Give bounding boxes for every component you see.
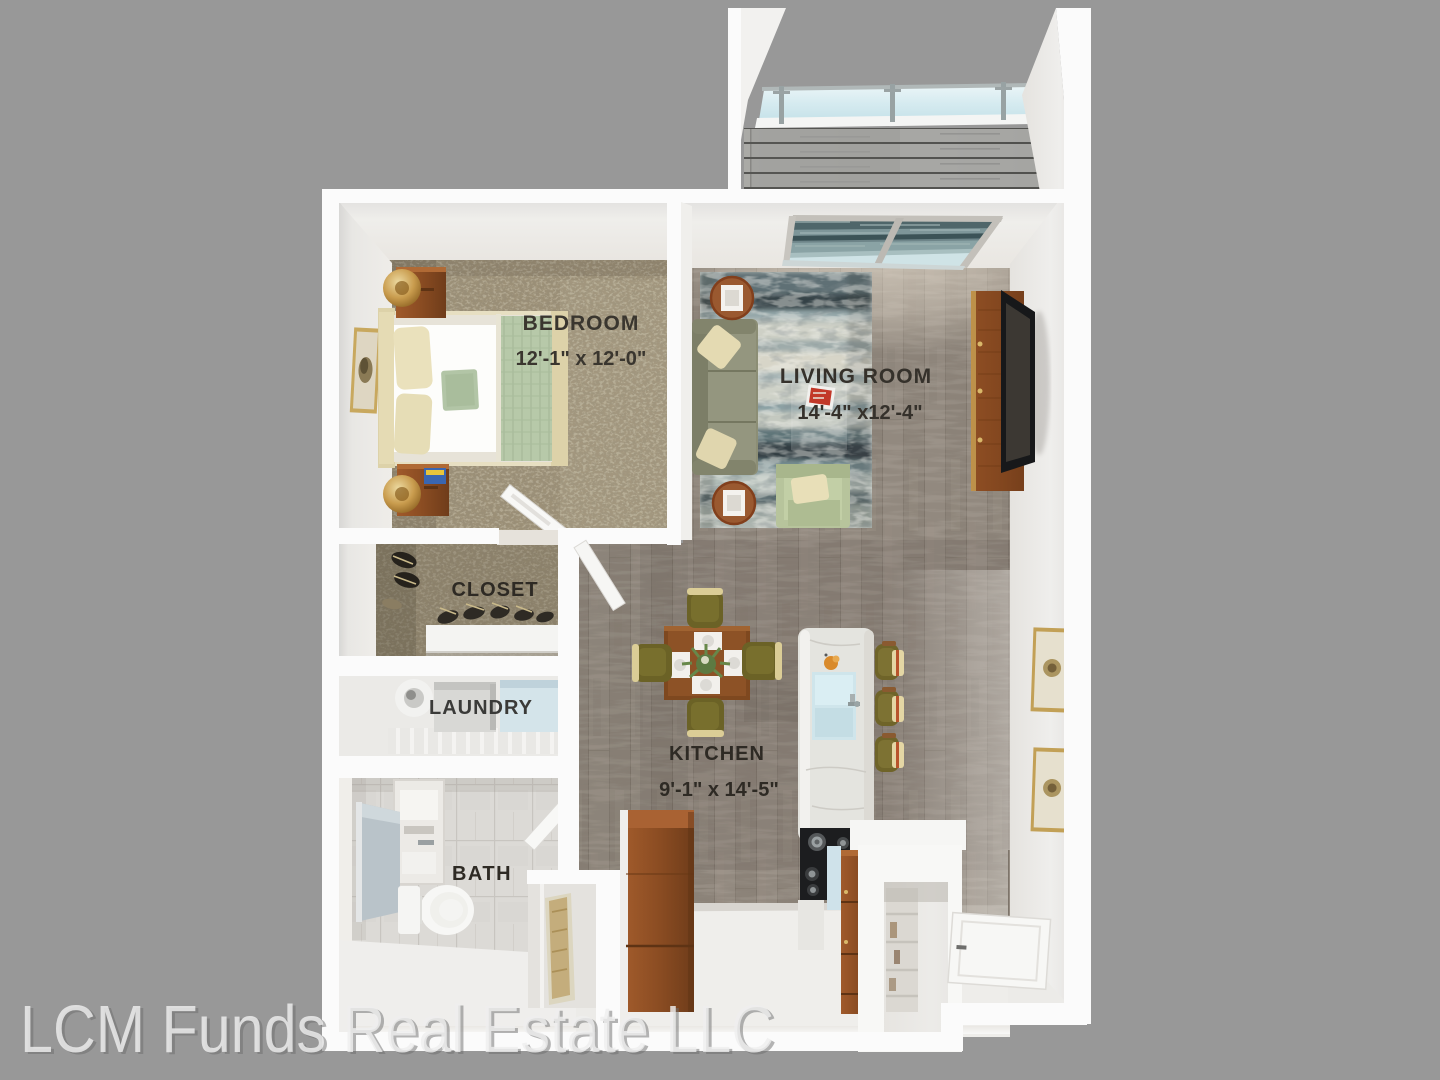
svg-text:BATH: BATH — [452, 863, 512, 885]
svg-text:LAUNDRY: LAUNDRY — [429, 697, 533, 719]
svg-text:14'-4" x12'-4": 14'-4" x12'-4" — [797, 402, 922, 424]
svg-text:KITCHEN: KITCHEN — [669, 743, 765, 765]
svg-text:LIVING ROOM: LIVING ROOM — [780, 365, 932, 388]
svg-text:LCM Funds Real Estate LLC: LCM Funds Real Estate LLC — [20, 992, 774, 1067]
svg-text:12'-1" x 12'-0": 12'-1" x 12'-0" — [516, 348, 647, 370]
svg-text:9'-1" x 14'-5": 9'-1" x 14'-5" — [659, 779, 779, 801]
svg-text:BEDROOM: BEDROOM — [523, 312, 640, 335]
svg-text:CLOSET: CLOSET — [451, 579, 538, 601]
